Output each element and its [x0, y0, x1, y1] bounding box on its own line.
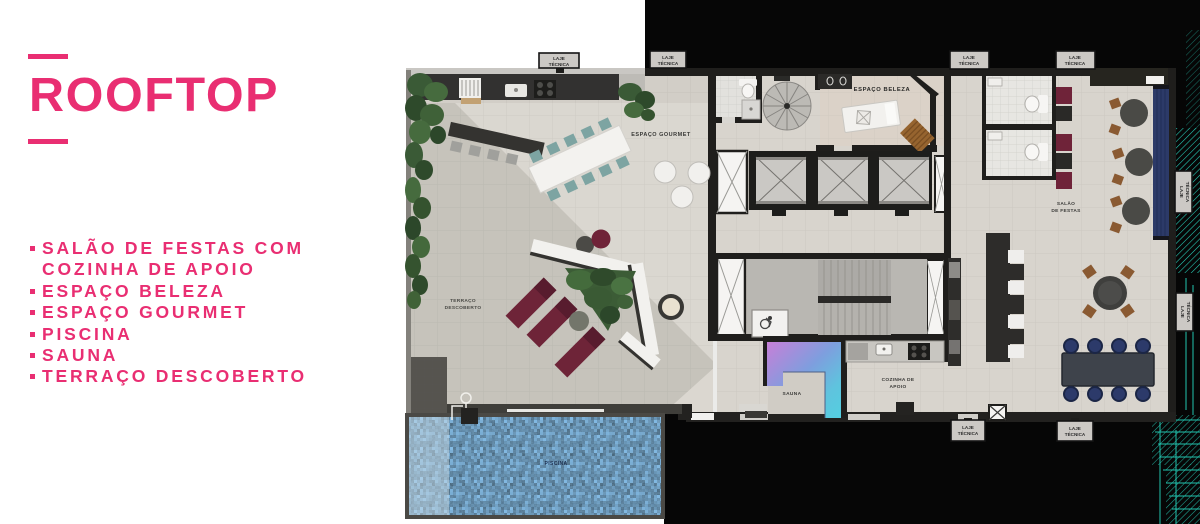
svg-text:PISCINA: PISCINA [544, 461, 567, 467]
svg-text:TÉCNICA: TÉCNICA [1185, 182, 1192, 203]
svg-text:DESCOBERTO: DESCOBERTO [445, 305, 482, 311]
svg-text:TÉCNICA: TÉCNICA [1065, 59, 1086, 66]
svg-text:TERRAÇO: TERRAÇO [450, 298, 476, 304]
svg-text:SALÃO: SALÃO [1057, 200, 1075, 207]
svg-text:SAUNA: SAUNA [782, 391, 801, 397]
svg-text:TÉCNICA: TÉCNICA [549, 60, 570, 67]
svg-text:TÉCNICA: TÉCNICA [959, 59, 980, 66]
svg-text:TÉCNICA: TÉCNICA [958, 429, 979, 436]
svg-text:LAJE: LAJE [662, 55, 674, 60]
svg-text:TÉCNICA: TÉCNICA [658, 59, 679, 66]
svg-text:ESPAÇO BELEZA: ESPAÇO BELEZA [854, 87, 911, 93]
svg-text:LAJE: LAJE [962, 425, 974, 430]
svg-text:LAJE: LAJE [1180, 306, 1185, 318]
svg-text:LAJE: LAJE [1179, 186, 1184, 198]
svg-text:TÉCNICA: TÉCNICA [1065, 430, 1086, 437]
svg-text:LAJE: LAJE [1069, 426, 1081, 431]
svg-text:DE FESTAS: DE FESTAS [1051, 208, 1081, 214]
svg-text:TÉCNICA: TÉCNICA [1186, 302, 1193, 323]
svg-text:LAJE: LAJE [963, 55, 975, 60]
svg-text:APOIO: APOIO [890, 384, 907, 390]
svg-text:LAJE: LAJE [1069, 55, 1081, 60]
svg-text:LAJE: LAJE [553, 56, 565, 61]
svg-text:ESPAÇO GOURMET: ESPAÇO GOURMET [631, 132, 691, 138]
svg-text:COZINHA DE: COZINHA DE [882, 377, 915, 383]
